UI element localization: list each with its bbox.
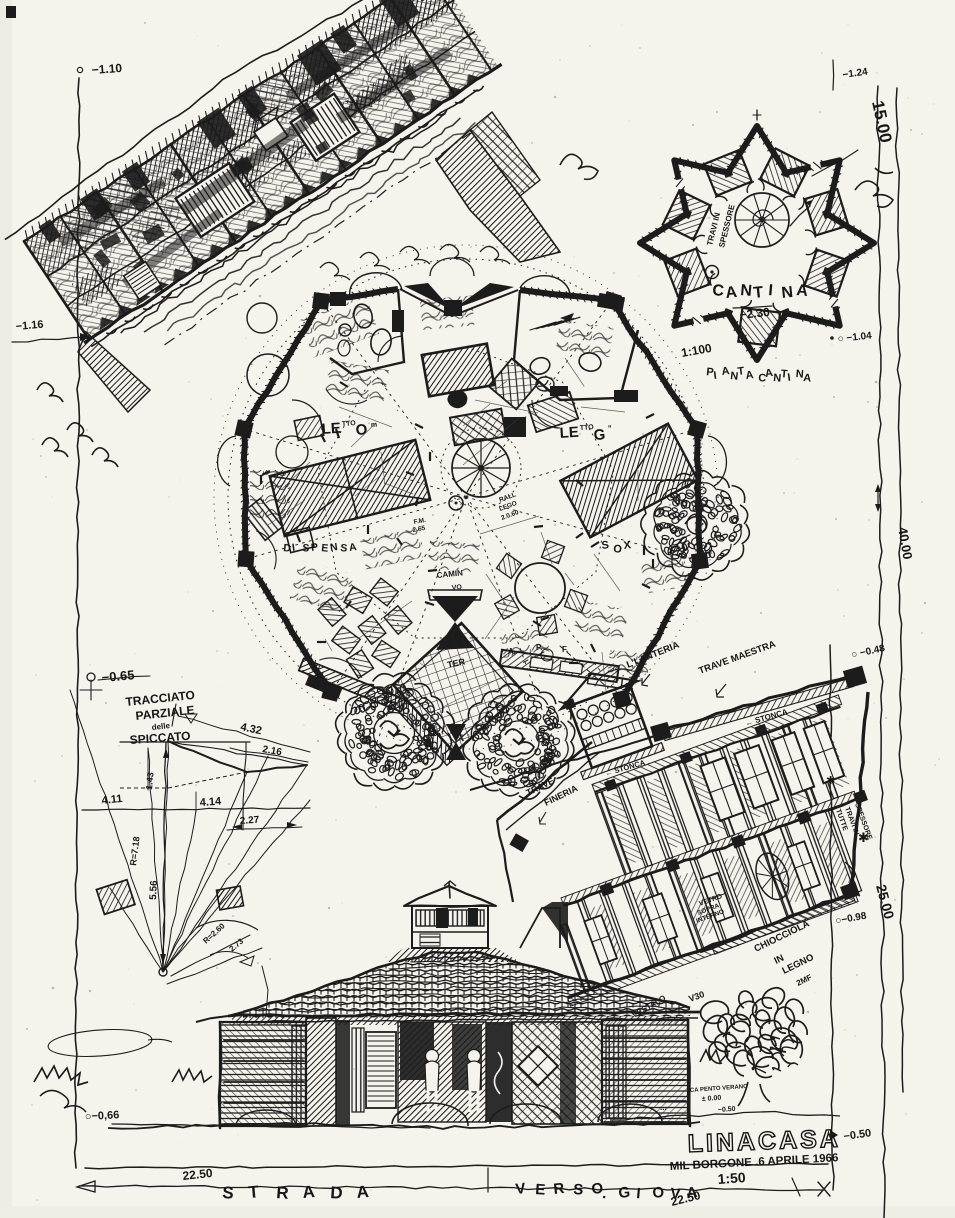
svg-text:E: E (321, 542, 329, 555)
svg-text:O: O (652, 1184, 666, 1202)
svg-text:A: A (686, 1184, 699, 1202)
svg-text:N: N (781, 284, 794, 302)
svg-text:✱: ✱ (858, 830, 869, 845)
svg-text:S: S (573, 1181, 584, 1199)
svg-text:R: R (276, 1183, 290, 1203)
svg-text:S: S (340, 542, 348, 555)
svg-text:A: A (356, 1182, 370, 1202)
svg-text:D: D (330, 1183, 344, 1203)
svg-text:G: G (593, 426, 606, 444)
svg-text:C: C (712, 282, 725, 300)
svg-text:T: T (753, 284, 765, 302)
svg-text:A: A (796, 282, 809, 300)
svg-text:1:50: 1:50 (717, 1169, 746, 1187)
svg-text:−0.50: −0.50 (718, 1106, 736, 1114)
svg-text:V: V (515, 1180, 527, 1198)
svg-text:○−0,66: ○−0,66 (85, 1109, 120, 1123)
svg-text:2.27: 2.27 (239, 815, 260, 827)
svg-text:−0.65: −0.65 (101, 667, 135, 685)
svg-text:−1.10: −1.10 (91, 61, 123, 77)
svg-text:O: O (613, 543, 623, 556)
svg-text:−1.16: −1.16 (15, 319, 44, 333)
svg-text:A: A (745, 369, 754, 382)
svg-text:A: A (302, 1182, 316, 1202)
svg-text:V: V (670, 1185, 681, 1203)
svg-text:S: S (302, 542, 310, 555)
svg-text:✱: ✱ (826, 775, 835, 787)
svg-text:4.11: 4.11 (101, 793, 123, 807)
svg-text:A: A (725, 284, 739, 302)
svg-text:N: N (740, 282, 753, 300)
svg-text:S: S (222, 1183, 235, 1203)
svg-text:4.14: 4.14 (199, 795, 222, 809)
svg-text:LE: LE (559, 424, 579, 442)
svg-text:R: R (553, 1180, 566, 1198)
svg-text:A: A (803, 372, 812, 385)
svg-text:S: S (601, 539, 610, 552)
svg-text:± 0.00: ± 0.00 (702, 1095, 722, 1103)
svg-text:”: ” (608, 424, 613, 433)
svg-text:A: A (721, 365, 730, 378)
svg-text:G: G (618, 1184, 631, 1202)
svg-text:...: ... (660, 1103, 667, 1112)
svg-text:E: E (535, 1181, 546, 1199)
svg-text:5.56: 5.56 (148, 880, 160, 900)
